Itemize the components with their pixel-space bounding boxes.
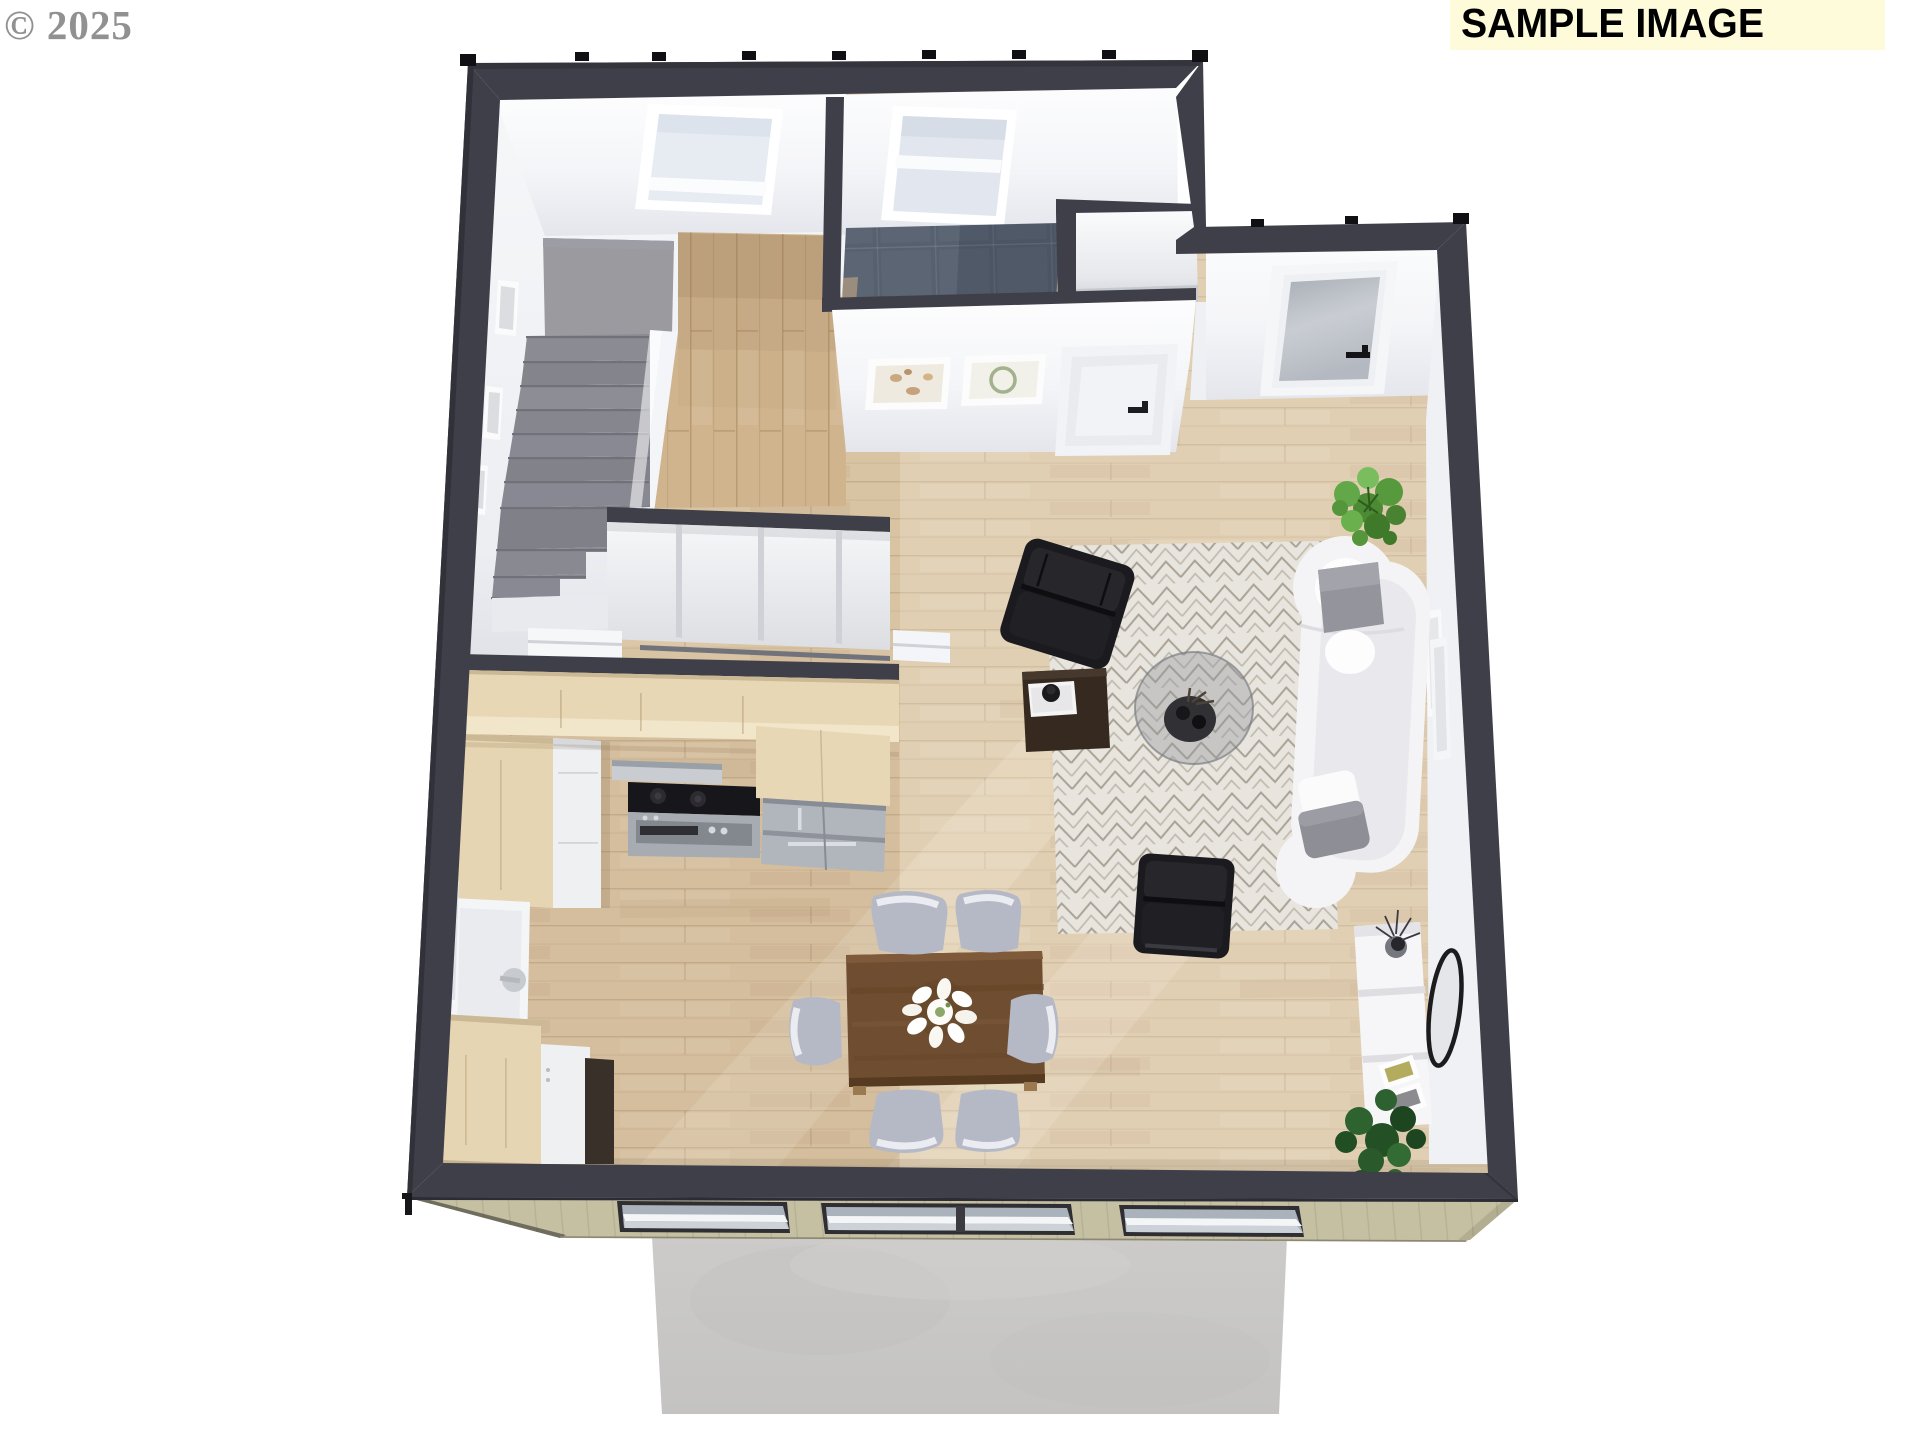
svg-text:© 2025: © 2025	[4, 2, 133, 48]
svg-text:SAMPLE IMAGE: SAMPLE IMAGE	[1461, 0, 1764, 46]
